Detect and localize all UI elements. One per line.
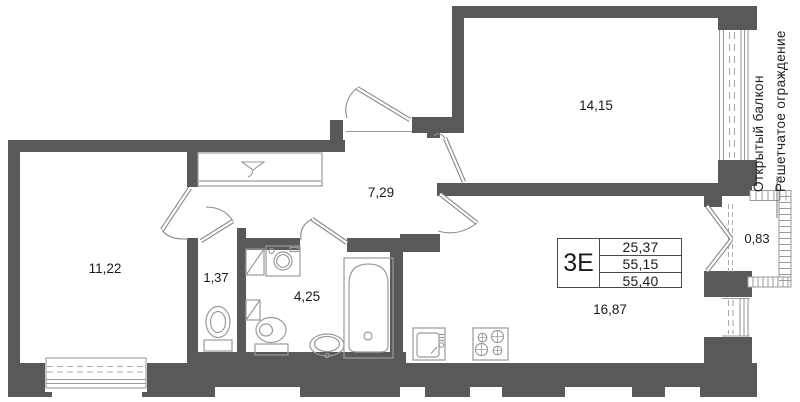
annotation-open-balcony: Открытый балкон — [748, 0, 770, 192]
kitchen-sink-icon — [413, 328, 445, 360]
walls-layer — [8, 6, 757, 397]
toilet-icon-2 — [255, 318, 288, 356]
washing-machine-icon — [266, 246, 300, 276]
balcony-annotation: Открытый балкон Решетчатое ограждение — [748, 0, 798, 192]
apartment-type-label: 3Е — [558, 239, 600, 287]
floor-plan: 11,22 7,29 14,15 16,87 1,37 4,25 0,83 3Е… — [0, 0, 800, 402]
room-area-label-living-kitchen: 16,87 — [578, 302, 642, 317]
coat-hanger-icon — [242, 162, 264, 177]
apartment-areas: 25,37 55,15 55,40 — [600, 239, 681, 287]
room-area-label-hall: 7,29 — [349, 185, 413, 200]
room-area-label-bedroom-left: 11,22 — [73, 261, 137, 276]
room-area-label-bathroom: 4,25 — [275, 289, 339, 304]
area-value-row: 55,40 — [600, 273, 681, 289]
door-living-room — [438, 194, 477, 233]
stove-icon — [473, 328, 508, 360]
door-wc — [201, 207, 233, 241]
area-value-row: 55,15 — [600, 256, 681, 273]
annotation-lattice-fence: Решетчатое ограждение — [770, 0, 792, 192]
floor-plan-drawing — [0, 0, 800, 402]
door-bathroom — [301, 219, 347, 243]
room-area-label-balcony: 0,83 — [725, 231, 789, 246]
entrance-door — [346, 88, 410, 120]
apartment-info-table: 3Е 25,37 55,15 55,40 — [557, 238, 682, 288]
bathtub-icon — [344, 258, 393, 358]
room-area-label-bedroom-top: 14,15 — [564, 98, 628, 113]
vent-shaft-icon — [246, 249, 264, 320]
wardrobe — [198, 153, 322, 186]
area-value-row: 25,37 — [600, 239, 681, 256]
door-bedroom-top — [434, 134, 464, 182]
door-bedroom-left — [162, 188, 190, 239]
window-top-right-glazing — [720, 30, 749, 160]
balcony-annotation-text: Открытый балкон Решетчатое ограждение — [748, 0, 794, 192]
toilet-icon — [204, 307, 232, 352]
room-area-label-wc: 1,37 — [184, 270, 248, 285]
